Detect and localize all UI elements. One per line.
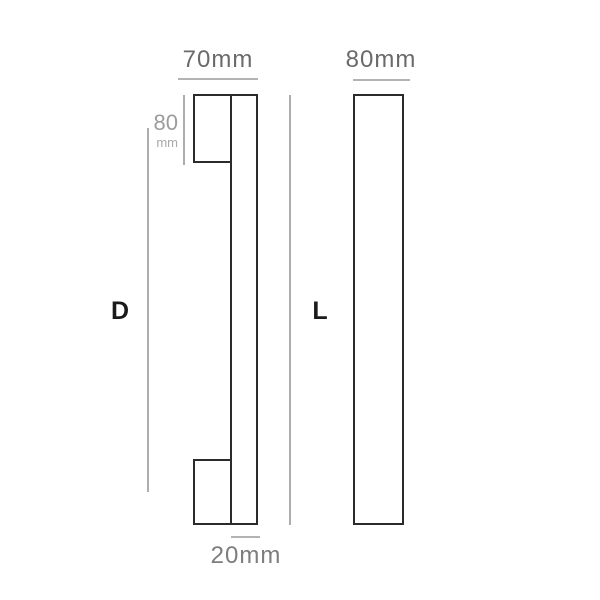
handle-bottom-mount-foot-outline: [193, 459, 232, 525]
bar-thickness-dimension-label: 20mm: [186, 542, 306, 570]
foot-height-dimension-line: [183, 95, 185, 165]
handle-grip-bar-outline: [230, 94, 258, 525]
handle-front-body-outline: [353, 94, 404, 525]
foot-height-value: 80: [134, 112, 178, 134]
technical-drawing-canvas: 70mm 80 mm D 20mm 80mm L: [0, 0, 600, 600]
front-view-length-dimension-line: [289, 95, 291, 525]
front-view-width-dimension-line: [353, 79, 410, 81]
side-view-length-dimension-label: D: [103, 297, 137, 326]
handle-top-mount-foot-outline: [193, 94, 232, 163]
side-view-width-dimension-line: [178, 78, 258, 80]
front-view-width-dimension-label: 80mm: [321, 46, 441, 74]
front-view-length-dimension-label: L: [303, 297, 337, 326]
side-view-length-dimension-line: [147, 128, 149, 492]
foot-height-unit: mm: [134, 136, 178, 149]
side-view-width-dimension-label: 70mm: [158, 46, 278, 74]
foot-height-dimension-label: 80 mm: [134, 112, 178, 149]
bar-thickness-dimension-line: [231, 536, 260, 538]
